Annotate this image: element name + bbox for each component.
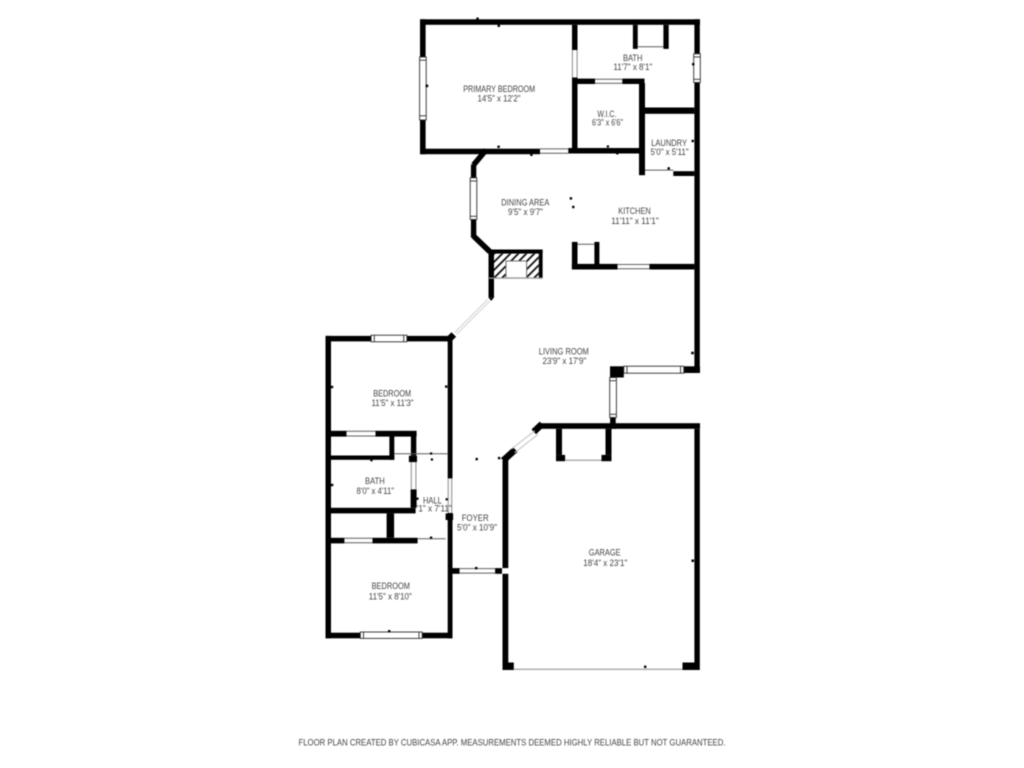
svg-text:FLOOR PLAN CREATED BY CUBICASA: FLOOR PLAN CREATED BY CUBICASA APP. MEAS… [299, 737, 726, 748]
svg-text:PRIMARY BEDROOM: PRIMARY BEDROOM [463, 84, 535, 94]
svg-text:11'5" x 11'3": 11'5" x 11'3" [372, 398, 414, 408]
svg-text:KITCHEN: KITCHEN [618, 206, 651, 216]
svg-text:5'0" x 10'9": 5'0" x 10'9" [457, 522, 497, 532]
svg-text:'1" x 7'11": '1" x 7'11" [417, 504, 452, 514]
svg-text:6'3" x 6'6": 6'3" x 6'6" [592, 117, 623, 127]
svg-text:11'5" x 8'10": 11'5" x 8'10" [369, 591, 412, 601]
svg-text:9'5" x 9'7": 9'5" x 9'7" [508, 207, 543, 217]
svg-text:5'0" x 5'11": 5'0" x 5'11" [651, 147, 689, 157]
svg-text:BEDROOM: BEDROOM [373, 389, 411, 399]
svg-text:14'5" x 12'2": 14'5" x 12'2" [478, 93, 521, 103]
svg-text:BEDROOM: BEDROOM [372, 581, 410, 591]
svg-text:18'4" x 23'1": 18'4" x 23'1" [583, 558, 627, 568]
svg-text:GARAGE: GARAGE [589, 548, 621, 558]
svg-text:DINING AREA: DINING AREA [501, 197, 550, 207]
svg-text:11'7" x 8'1": 11'7" x 8'1" [613, 62, 652, 72]
svg-text:8'0" x 4'11": 8'0" x 4'11" [357, 486, 395, 496]
svg-text:BATH: BATH [365, 476, 385, 486]
svg-text:11'11" x 11'1": 11'11" x 11'1" [611, 216, 659, 226]
svg-text:LIVING ROOM: LIVING ROOM [539, 347, 589, 357]
svg-text:23'9" x 17'9": 23'9" x 17'9" [543, 356, 587, 366]
